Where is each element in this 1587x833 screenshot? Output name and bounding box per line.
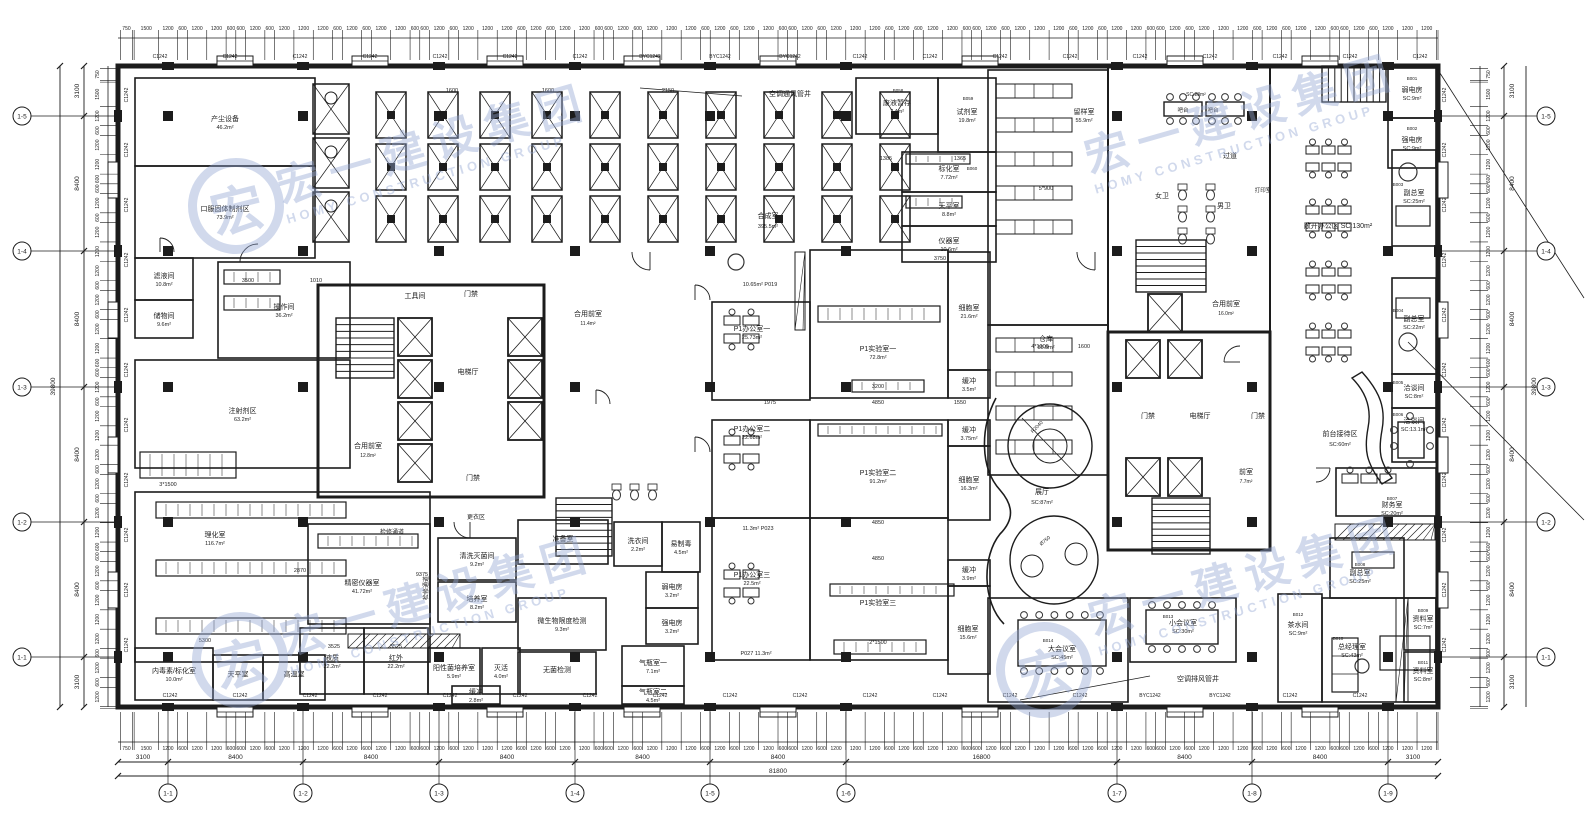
door-arc xyxy=(596,390,610,404)
plan-label: 空调通风管井 xyxy=(769,89,811,98)
window-tag: C1242 xyxy=(153,54,168,60)
dim-text: 1200 xyxy=(95,565,101,576)
dim-text: 1200 xyxy=(250,746,261,752)
window-tag: C1242 xyxy=(793,693,808,699)
chair xyxy=(1342,261,1348,267)
room-area: SC:7m² xyxy=(1414,625,1433,631)
inner-dim: 3525 xyxy=(328,644,340,650)
room-name: P1实验室一 xyxy=(860,344,897,353)
lab-bench xyxy=(852,380,924,392)
plan-label: 检修通道 xyxy=(380,528,404,536)
desk xyxy=(1322,285,1335,293)
dim-text: 600 xyxy=(95,581,101,590)
plan-label: 12.8m² xyxy=(360,453,376,459)
chair xyxy=(1222,94,1229,101)
chair xyxy=(1149,646,1156,653)
window-tag: C1242 xyxy=(233,693,248,699)
plan-label: 10.65m² P019 xyxy=(743,282,778,288)
axis-bubble-label: 1-4 xyxy=(17,249,27,256)
exhibit-dim: R2040 xyxy=(1030,420,1045,435)
dim-text: 600 xyxy=(1486,213,1492,222)
column xyxy=(1383,246,1393,256)
column xyxy=(570,517,580,527)
toilet-bowl xyxy=(1207,212,1215,222)
room-area: 7.1m² xyxy=(646,669,660,675)
window-tag: C1242 xyxy=(433,54,448,60)
desk xyxy=(1322,347,1335,355)
plan-label: 门禁 xyxy=(1251,411,1265,420)
dim-text: 1200 xyxy=(1486,594,1492,605)
desk xyxy=(1380,474,1396,483)
plan-label: 过道 xyxy=(1223,151,1237,160)
window-tag: C1242 xyxy=(1063,54,1078,60)
plan-label: 男卫 xyxy=(1217,202,1231,210)
hatch-line xyxy=(356,634,370,648)
dim-text: 1200 xyxy=(395,746,406,752)
dim-text: 600 xyxy=(1486,581,1492,590)
dim-text: 600 xyxy=(885,26,894,32)
fume-core xyxy=(491,163,499,171)
desk xyxy=(724,334,740,343)
dim-text: 1200 xyxy=(831,26,842,32)
dim-text: 1200 xyxy=(1353,26,1364,32)
plan-label: 11.4m² xyxy=(580,321,596,327)
window-tag: C1242 xyxy=(1442,197,1448,212)
dim-text: 1200 xyxy=(1486,343,1492,354)
axis-bubble-label: 1-1 xyxy=(17,655,27,662)
dim-text: 1200 xyxy=(482,746,493,752)
chair xyxy=(729,344,735,350)
chair xyxy=(1209,118,1216,125)
axis-bubble-label: 1-2 xyxy=(298,791,308,798)
dim-text: 600 xyxy=(788,746,797,752)
room-area: 3.9m² xyxy=(962,576,976,582)
dim-text: 600 xyxy=(95,397,101,406)
dim-text: 1200 xyxy=(434,26,445,32)
dim-text: 1200 xyxy=(985,26,996,32)
dim-text: 1200 xyxy=(1218,746,1229,752)
room-name: P1实验室三 xyxy=(860,598,897,607)
door-arc xyxy=(1077,252,1095,270)
dim-text: 1200 xyxy=(95,430,101,441)
chair xyxy=(1036,668,1043,675)
fume-core xyxy=(891,215,899,223)
dim-text: 1200 xyxy=(1486,478,1492,489)
window-tag: C1242 xyxy=(503,54,518,60)
inner-dim: 1365 xyxy=(954,156,966,162)
chair xyxy=(1326,139,1332,145)
column xyxy=(704,62,716,70)
column xyxy=(1112,246,1122,256)
axis-bubble-label: 1-3 xyxy=(434,791,444,798)
total-dim: 81800 xyxy=(769,768,787,775)
plan-label: B008 xyxy=(1355,562,1366,567)
room-area: 4.5m² xyxy=(646,698,660,704)
dim-text: 1200 xyxy=(1237,746,1248,752)
hatch-line xyxy=(1415,524,1431,540)
room-name: 细胞室 xyxy=(958,624,979,633)
window-bay xyxy=(108,302,118,338)
desk xyxy=(1322,268,1335,276)
plan-label: 展厅 xyxy=(1035,488,1049,496)
fume-core xyxy=(775,111,783,119)
dim-text: 600 xyxy=(1486,310,1492,319)
axis-bubble-label: 1-1 xyxy=(1541,655,1551,662)
room-area: 19.8m² xyxy=(958,118,975,124)
room-name: 资料室 xyxy=(1413,614,1434,623)
room-area: 10.0m² xyxy=(165,677,182,683)
dim-text: 1200 xyxy=(579,746,590,752)
dim-text: 1200 xyxy=(1486,614,1492,625)
fume-core xyxy=(659,163,667,171)
room-name: 弱电房 xyxy=(662,582,683,591)
room-area: SC:45m² xyxy=(1051,655,1073,661)
dim-text: 600 xyxy=(1098,26,1107,32)
span-dim: 8400 xyxy=(1177,754,1192,761)
fume-core xyxy=(717,215,725,223)
room-outline xyxy=(1404,598,1436,650)
desk xyxy=(724,316,740,325)
stair-outline xyxy=(336,318,394,378)
column xyxy=(1247,382,1257,392)
leader-line xyxy=(1408,342,1584,520)
toilet xyxy=(630,484,639,490)
exhibit-radius xyxy=(1022,418,1078,476)
dim-text: 1200 xyxy=(346,746,357,752)
duct-fan xyxy=(325,146,337,158)
plan-label: 更衣区 xyxy=(467,513,485,521)
dim-text: 1500 xyxy=(95,88,101,99)
dim-text: 1200 xyxy=(1486,633,1492,644)
axis-bubble-label: 1-5 xyxy=(1541,114,1551,121)
inner-dim: 1600 xyxy=(542,88,554,94)
plan-label: 工具间 xyxy=(405,292,426,300)
chair xyxy=(1310,139,1316,145)
chair xyxy=(1342,356,1348,362)
span-dim: 8400 xyxy=(635,754,650,761)
axis-bubble-label: 1-1 xyxy=(163,791,173,798)
window-tag: C1242 xyxy=(923,54,938,60)
dim-text: 600 xyxy=(95,368,101,377)
room-area: 91.2m² xyxy=(869,479,886,485)
desk xyxy=(724,588,740,597)
dim-text: 1200 xyxy=(298,26,309,32)
chair xyxy=(1310,199,1316,205)
window-tag: BYC1242 xyxy=(779,54,801,60)
dim-text: 600 xyxy=(1069,26,1078,32)
stair-outline xyxy=(1152,498,1210,554)
chair xyxy=(1326,323,1332,329)
room-area: 73.9m² xyxy=(216,215,233,221)
plan-label: B006 xyxy=(1393,412,1404,417)
lab-bench xyxy=(156,618,346,634)
span-dim: 3100 xyxy=(136,754,151,761)
room-outline xyxy=(712,518,810,660)
chair xyxy=(1310,323,1316,329)
dim-text: 1200 xyxy=(801,26,812,32)
column xyxy=(570,111,580,121)
dim-text: 600 xyxy=(178,746,187,752)
chair xyxy=(1164,646,1171,653)
dim-text: 600 xyxy=(236,746,245,752)
inner-dim: 5300 xyxy=(199,638,211,644)
room-area: 46.2m² xyxy=(216,125,233,131)
chair xyxy=(1235,94,1242,101)
room-area: 22.2m² xyxy=(387,664,404,670)
dim-text: 600 xyxy=(779,746,788,752)
room-area: 2.2m² xyxy=(631,547,645,553)
dim-text: 1200 xyxy=(647,746,658,752)
room-area: SC:20m² xyxy=(1381,511,1403,517)
dim-text: 1200 xyxy=(947,746,958,752)
dim-text: 1200 xyxy=(1486,507,1492,518)
room-area: SC:9m² xyxy=(1403,146,1422,152)
desk xyxy=(1338,163,1351,171)
dim-text: 750 xyxy=(122,746,131,752)
plan-label: 合用前室 xyxy=(1212,299,1240,308)
dim-text: 1200 xyxy=(898,26,909,32)
dim-text: 1200 xyxy=(192,746,203,752)
column xyxy=(434,246,444,256)
chair xyxy=(729,598,735,604)
window-tag: C1242 xyxy=(993,54,1008,60)
dim-text: 600 xyxy=(1486,126,1492,135)
round-table xyxy=(728,254,744,270)
dim-text: 600 xyxy=(1253,26,1262,32)
window-tag: C1242 xyxy=(1343,54,1358,60)
dim-text: 1200 xyxy=(95,410,101,421)
dim-text: 600 xyxy=(1486,175,1492,184)
inner-dim: 4850 xyxy=(872,400,884,406)
column xyxy=(1112,652,1122,662)
column xyxy=(1247,246,1257,256)
room-area: 3.75m² xyxy=(960,436,977,442)
desk xyxy=(1338,146,1351,154)
hatch-line xyxy=(436,634,450,648)
dim-text: 600 xyxy=(1369,746,1378,752)
door-arc xyxy=(632,252,650,270)
room-area: SC:8m² xyxy=(1414,677,1433,683)
desk xyxy=(1338,330,1351,338)
span-dim: 8400 xyxy=(771,754,786,761)
dim-text: 1200 xyxy=(1421,746,1432,752)
span-dim: 3100 xyxy=(74,83,81,98)
dim-text: 600 xyxy=(963,746,972,752)
axis-bubble-label: 1-5 xyxy=(17,114,27,121)
desk xyxy=(1342,474,1358,483)
chair xyxy=(1209,94,1216,101)
dim-text: 1200 xyxy=(95,343,101,354)
room-name: 大会议室 xyxy=(1048,644,1076,653)
dim-text: 600 xyxy=(95,542,101,551)
room-name: 财务室 xyxy=(1382,500,1403,509)
toilet xyxy=(1178,206,1187,212)
inner-dim: 2150 xyxy=(662,88,674,94)
span-dim: 3100 xyxy=(1406,754,1421,761)
dim-text: 1200 xyxy=(714,746,725,752)
span-dim: 8400 xyxy=(1509,447,1516,462)
axis-bubble-label: 1-3 xyxy=(17,385,27,392)
window-tag: C1242 xyxy=(1442,527,1448,542)
dim-text: 600 xyxy=(885,746,894,752)
window-tag: C1242 xyxy=(124,637,130,652)
desk xyxy=(1338,285,1351,293)
room-name: 强电房 xyxy=(1402,135,1423,144)
plan-label: B012 xyxy=(1293,612,1304,617)
room-area: 22.2m² xyxy=(323,664,340,670)
core-outline xyxy=(1108,332,1270,550)
axis-bubble-label: 1-5 xyxy=(705,791,715,798)
hatch-line xyxy=(404,634,418,648)
dim-text: 600 xyxy=(420,746,429,752)
dim-text: 1200 xyxy=(685,746,696,752)
room-outline xyxy=(1278,594,1322,702)
room-name: 细胞室 xyxy=(959,303,980,312)
dim-text: 600 xyxy=(449,746,458,752)
dim-text: 600 xyxy=(517,26,526,32)
dim-text: 600 xyxy=(95,175,101,184)
chair xyxy=(1209,646,1216,653)
desk xyxy=(743,316,759,325)
inner-dim: 3525 xyxy=(390,644,402,650)
chair xyxy=(1066,668,1073,675)
inner-dim: 3500 xyxy=(242,278,254,284)
dim-text: 600 xyxy=(95,184,101,193)
room-name: 天平室 xyxy=(939,201,960,210)
dim-text: 1500 xyxy=(141,746,152,752)
room-name: 缓冲 xyxy=(962,376,976,385)
floor-plan-svg: C1242C1242C1242C1242C1242C1242C1242BYC12… xyxy=(0,0,1587,833)
plan-label: 11.3m² P023 xyxy=(742,526,773,532)
dim-text: 1200 xyxy=(1402,26,1413,32)
dim-text: 1200 xyxy=(1266,746,1277,752)
chair xyxy=(1427,443,1434,450)
plan-label: P027 11.3m² xyxy=(740,651,771,657)
desk xyxy=(724,436,740,445)
fume-core xyxy=(775,163,783,171)
room-name: 缓冲 xyxy=(469,687,483,696)
plan-label: B004 xyxy=(1393,308,1404,313)
dim-text: 600 xyxy=(333,26,342,32)
window-tag: C1242 xyxy=(293,54,308,60)
door-arc xyxy=(695,285,710,300)
room-name: 缓冲 xyxy=(962,425,976,434)
dim-text: 600 xyxy=(411,26,420,32)
dim-text: 1200 xyxy=(463,26,474,32)
hatch-line xyxy=(372,634,386,648)
window-bay xyxy=(1438,437,1448,473)
chair xyxy=(1235,118,1242,125)
dim-text: 1200 xyxy=(850,26,861,32)
room-name: 精密仪器室 xyxy=(345,578,380,587)
toilet-bowl xyxy=(1207,234,1215,244)
room-name: 茶水间 xyxy=(1288,620,1309,629)
room-name: 产尘设备 xyxy=(211,114,239,123)
toilet-bowl xyxy=(1179,212,1187,222)
dim-text: 750 xyxy=(95,70,101,79)
inner-dim: 4850 xyxy=(872,556,884,562)
chair xyxy=(1310,172,1316,178)
plan-label: 7.7m² xyxy=(1240,479,1253,485)
room-area: 41.72m² xyxy=(352,589,372,595)
plan-label: B011 xyxy=(1418,660,1429,665)
room-name: P1办公室三 xyxy=(734,570,771,579)
dim-text: 600 xyxy=(95,552,101,561)
fume-core xyxy=(833,111,841,119)
window-tag: C1242 xyxy=(124,197,130,212)
room-name: 培养室 xyxy=(467,594,488,603)
dim-text: 1200 xyxy=(1034,26,1045,32)
dim-text: 1200 xyxy=(1486,565,1492,576)
window-tag: C1242 xyxy=(124,307,130,322)
chair xyxy=(729,563,735,569)
dim-text: 600 xyxy=(1147,26,1156,32)
hatch-line xyxy=(348,634,362,648)
room-name: 注射剂区 xyxy=(229,406,257,415)
dim-text: 1200 xyxy=(95,294,101,305)
column xyxy=(433,62,445,70)
inner-dim: 3*1500 xyxy=(159,482,176,488)
dim-text: 600 xyxy=(1098,746,1107,752)
stair-outline xyxy=(556,498,612,556)
dim-text: 1200 xyxy=(1486,430,1492,441)
desk xyxy=(1306,330,1319,338)
window-tag: C1242 xyxy=(124,142,130,157)
room-area: 9.2m² xyxy=(470,562,484,568)
dim-text: 1200 xyxy=(1486,691,1492,702)
plan-label: 空调排风管井 xyxy=(1177,674,1219,683)
plan-label: 合用前室 xyxy=(354,441,382,450)
toilet-bowl xyxy=(1207,190,1215,200)
column xyxy=(705,246,715,256)
dim-text: 1200 xyxy=(579,26,590,32)
lab-bench xyxy=(818,424,942,436)
chair xyxy=(1342,232,1348,238)
room-name: 小会议室 xyxy=(1169,618,1197,627)
dim-text: 600 xyxy=(95,213,101,222)
dim-text: 1200 xyxy=(95,449,101,460)
dim-text: 600 xyxy=(779,26,788,32)
dim-text: 1200 xyxy=(250,26,261,32)
inner-dim: 1385 xyxy=(880,156,892,162)
room-area: 10.8m² xyxy=(155,282,172,288)
dim-text: 600 xyxy=(633,746,642,752)
column xyxy=(1247,652,1257,662)
inner-dim: 1010 xyxy=(310,278,322,284)
dim-text: 600 xyxy=(546,26,555,32)
dim-text: 600 xyxy=(1486,678,1492,687)
dim-text: 1200 xyxy=(831,746,842,752)
fume-core xyxy=(439,215,447,223)
dim-text: 600 xyxy=(1369,26,1378,32)
chair xyxy=(729,309,735,315)
dim-text: 1200 xyxy=(618,26,629,32)
axis-bubble-label: 1-9 xyxy=(1383,791,1393,798)
door-arc xyxy=(1316,468,1330,482)
room-name: 试剂室 xyxy=(957,107,978,116)
room-area: SC:8m² xyxy=(1405,394,1424,400)
plan-label: B005 xyxy=(1393,380,1404,385)
chair xyxy=(1081,612,1088,619)
chair xyxy=(1194,646,1201,653)
exhibit-column xyxy=(1065,543,1087,565)
desk xyxy=(1338,268,1351,276)
dim-text: 1200 xyxy=(927,746,938,752)
column xyxy=(163,111,173,121)
dim-text: 1200 xyxy=(1486,226,1492,237)
dim-text: 1200 xyxy=(211,746,222,752)
dim-text: 600 xyxy=(914,26,923,32)
